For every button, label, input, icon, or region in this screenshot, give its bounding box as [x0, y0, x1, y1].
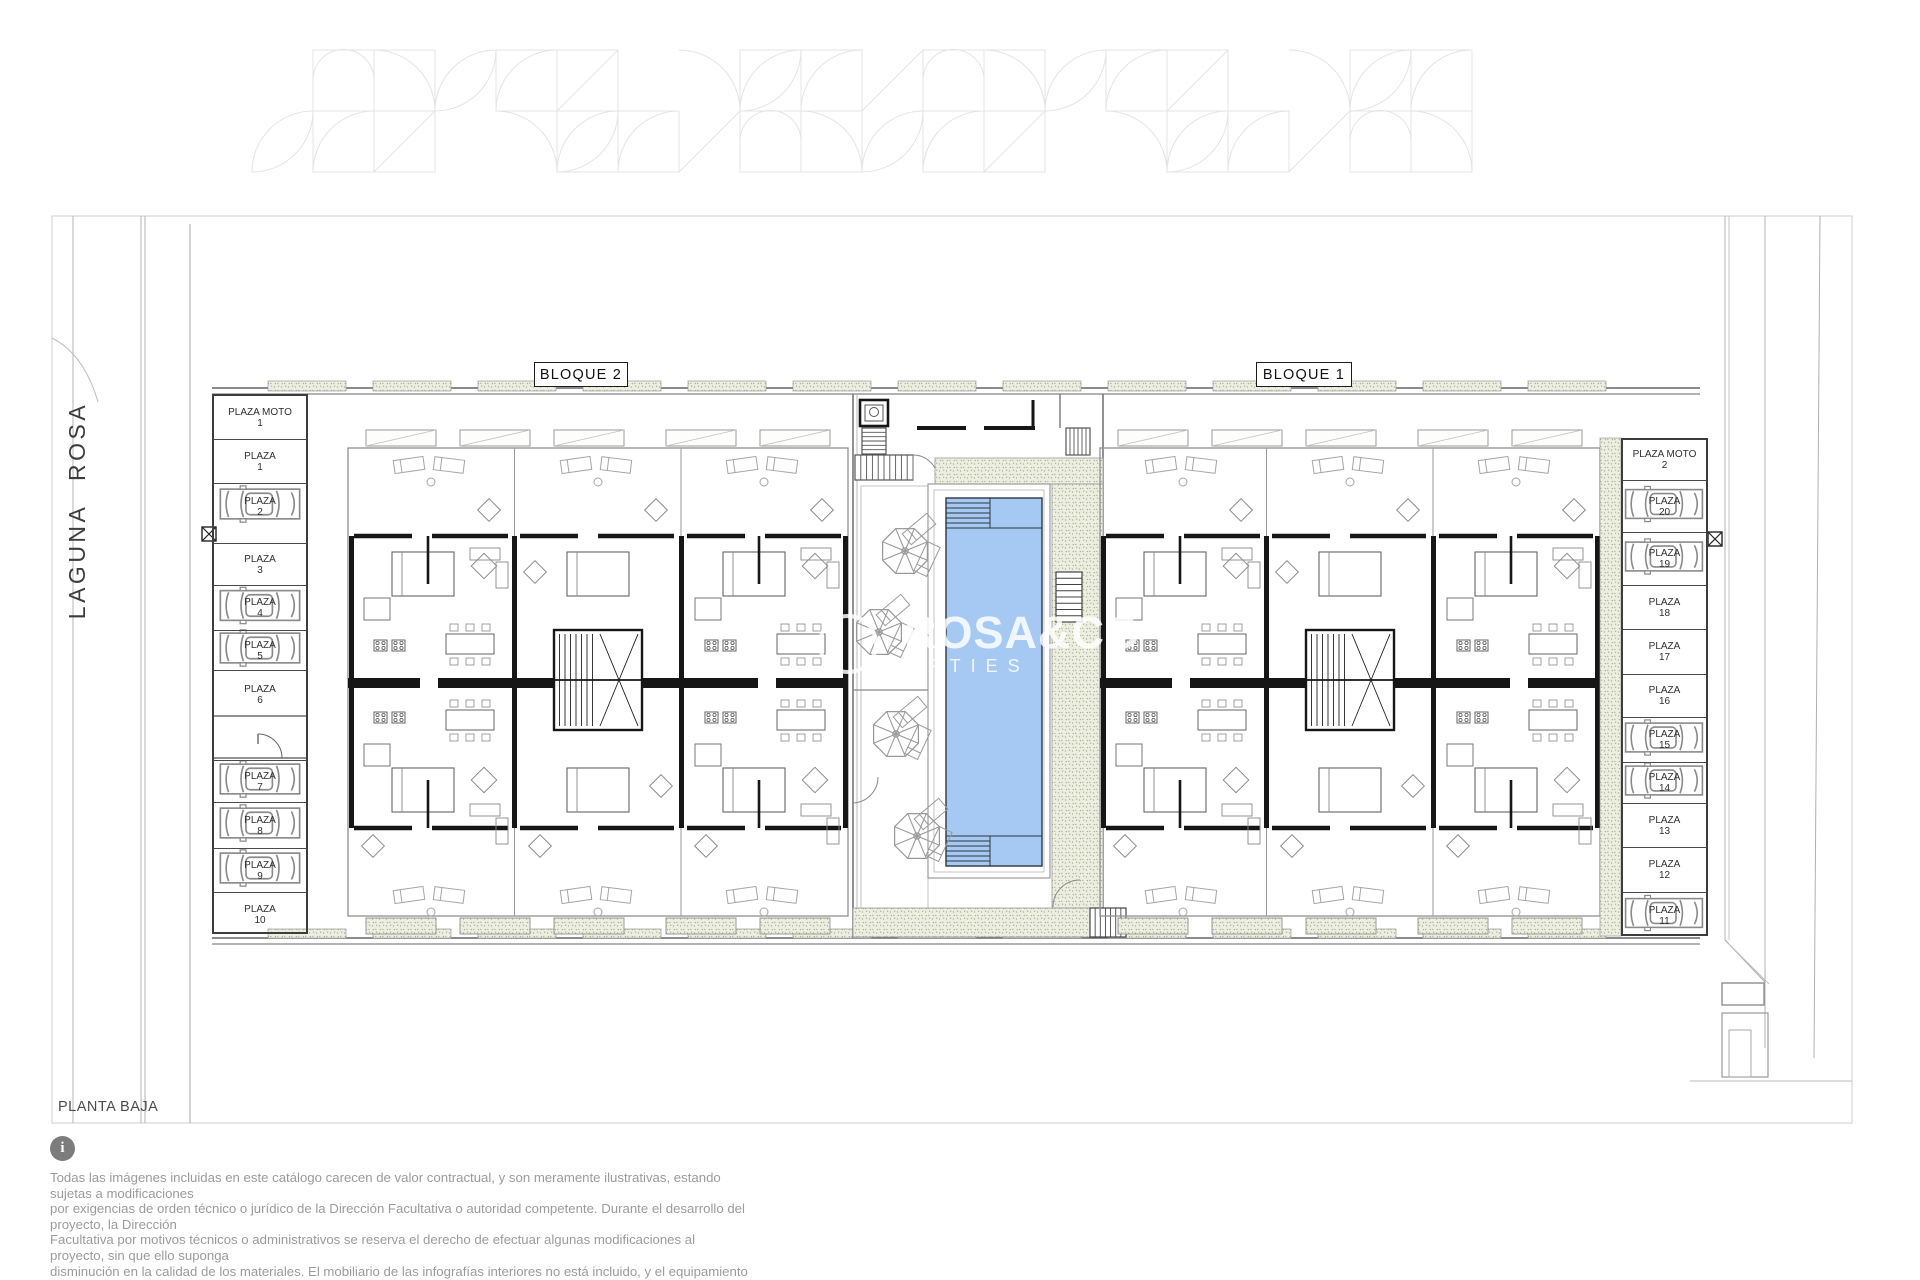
disclaimer-text: Todas las imágenes incluidas en este cat… — [50, 1170, 750, 1280]
parking-cell-label: PLAZA20 — [1623, 495, 1706, 517]
parking-cell-plaza-11: PLAZA11 — [1623, 892, 1706, 938]
parking-cell-label: PLAZA14 — [1623, 772, 1706, 794]
parking-column-right: PLAZA MOTO2PLAZA20PLAZA19PLAZA18PLAZA17P… — [1621, 438, 1708, 936]
block-1-label: BLOQUE 1 — [1256, 362, 1352, 387]
parking-cell-plaza-18: PLAZA18 — [1623, 585, 1706, 629]
parking-cell-label: PLAZA12 — [1623, 859, 1706, 881]
parking-cell-label: PLAZA10 — [214, 903, 306, 925]
info-icon: i — [50, 1136, 75, 1161]
disclaimer-line: Todas las imágenes incluidas en este cat… — [50, 1170, 750, 1201]
parking-cell-plaza-14: PLAZA14 — [1623, 762, 1706, 803]
parking-column-left: PLAZA MOTO1PLAZA1PLAZA2PLAZA3PLAZA4PLAZA… — [212, 394, 308, 934]
parking-cell-label: PLAZA MOTO2 — [1623, 449, 1706, 471]
parking-cell-plaza-16: PLAZA16 — [1623, 674, 1706, 717]
parking-cell-label: PLAZA18 — [1623, 596, 1706, 618]
parasol-icon — [874, 712, 919, 757]
parking-cell-plaza-3: PLAZA3 — [214, 543, 306, 585]
parking-cell-label: PLAZA13 — [1623, 814, 1706, 836]
parking-cell-label: PLAZA19 — [1623, 548, 1706, 570]
parking-cell-plaza-13: PLAZA13 — [1623, 803, 1706, 847]
parking-cell-label: PLAZA3 — [214, 553, 306, 575]
parking-cell-plaza-2: PLAZA2 — [214, 483, 306, 529]
block-1-floorplan — [1100, 430, 1600, 934]
parking-cell-label: PLAZA MOTO1 — [214, 406, 306, 428]
floor-plan-page: LAGUNA ROSA BLOQUE 2 BLOQUE 1 PLAZA MOTO… — [0, 0, 1920, 1280]
parking-cell-plaza-5: PLAZA5 — [214, 630, 306, 670]
parking-cell-label: PLAZA1 — [214, 450, 306, 472]
disclaimer-line: Facultativa por motivos técnicos o admin… — [50, 1232, 750, 1263]
service-room — [860, 400, 888, 426]
parking-cell-label: PLAZA6 — [214, 683, 306, 705]
footer-disclaimer: i Todas las imágenes incluidas en este c… — [50, 1136, 750, 1280]
block-2-label: BLOQUE 2 — [534, 362, 628, 387]
stairs — [855, 455, 913, 480]
parasol-icon — [883, 529, 928, 574]
parking-cell-label: PLAZA8 — [214, 814, 306, 836]
parking-cell-plaza-12: PLAZA12 — [1623, 847, 1706, 892]
parking-cell-plaza-9: PLAZA9 — [214, 848, 306, 892]
disclaimer-line: disminución en la calidad de los materia… — [50, 1264, 750, 1280]
parking-cell-label: PLAZA16 — [1623, 685, 1706, 707]
parking-cell-label: PLAZA15 — [1623, 729, 1706, 751]
stair-core — [1306, 630, 1394, 730]
street-label-laguna-rosa: LAGUNA ROSA — [18, 390, 138, 630]
parking-cell-plaza-19: PLAZA19 — [1623, 532, 1706, 585]
parking-cell-plaza-6: PLAZA6 — [214, 670, 306, 718]
stair-core — [554, 630, 642, 730]
block-2-floorplan — [348, 430, 848, 934]
parking-cell-label: PLAZA2 — [214, 495, 306, 517]
street-name: LAGUNA ROSA — [65, 401, 92, 618]
parasol-icon — [857, 610, 902, 655]
parking-cell-label: PLAZA11 — [1623, 904, 1706, 926]
plan-title: PLANTA BAJA — [58, 1099, 158, 1115]
parking-cell-label: PLAZA9 — [214, 859, 306, 881]
parking-cell-plaza-10: PLAZA10 — [214, 892, 306, 936]
parking-cell-plaza-moto-1: PLAZA MOTO1 — [214, 396, 306, 439]
parking-cell-plaza-1: PLAZA1 — [214, 439, 306, 483]
parking-cell-label: PLAZA4 — [214, 597, 306, 619]
swimming-pool — [928, 484, 1050, 878]
disclaimer-line: por exigencias de orden técnico o jurídi… — [50, 1201, 750, 1232]
parking-cell-label: PLAZA5 — [214, 639, 306, 661]
parking-cell-plaza-7: PLAZA7 — [214, 760, 306, 802]
parking-cell-plaza-17: PLAZA17 — [1623, 629, 1706, 674]
parking-cell-plaza-20: PLAZA20 — [1623, 480, 1706, 532]
parking-cell-label: PLAZA7 — [214, 770, 306, 792]
parking-cell-plaza-moto-2: PLAZA MOTO2 — [1623, 440, 1706, 480]
parking-cell-plaza-8: PLAZA8 — [214, 802, 306, 848]
parking-cell-plaza-15: PLAZA15 — [1623, 717, 1706, 762]
parking-cell-plaza-4: PLAZA4 — [214, 585, 306, 630]
parking-cell-label: PLAZA17 — [1623, 641, 1706, 663]
